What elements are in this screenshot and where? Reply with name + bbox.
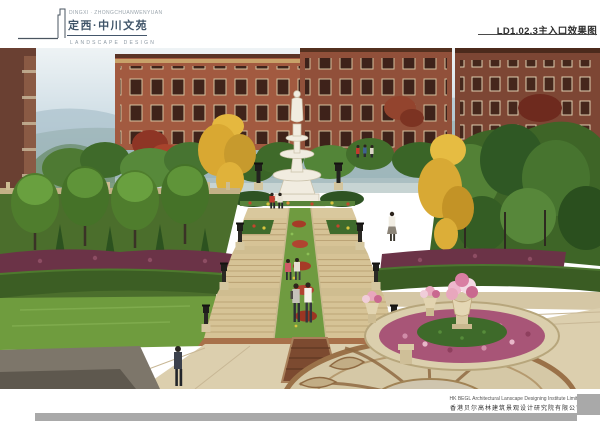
company-name-cn: 香港贝尔高林建筑景观设计研究院有限公司 (450, 403, 583, 412)
discipline-label: LANDSCAPE DESIGN (70, 40, 156, 46)
company-name-en: HK BEGL Architectural Lanscape Designing… (450, 396, 584, 402)
presentation-sheet: DINGXI · ZHONGCHUANWENYUAN 定西·中川文苑 LANDS… (0, 0, 600, 424)
drawing-label-underline (478, 34, 597, 35)
logo-caption: DINGXI · ZHONGCHUANWENYUAN (69, 10, 162, 16)
project-title: 定西·中川文苑 (68, 17, 148, 33)
person (387, 212, 397, 241)
stone-pedestal (398, 344, 414, 364)
footer-bar (35, 413, 577, 421)
footer-corner-block (577, 394, 600, 415)
title-underline (67, 35, 147, 36)
entrance-rendering-image (0, 48, 600, 389)
